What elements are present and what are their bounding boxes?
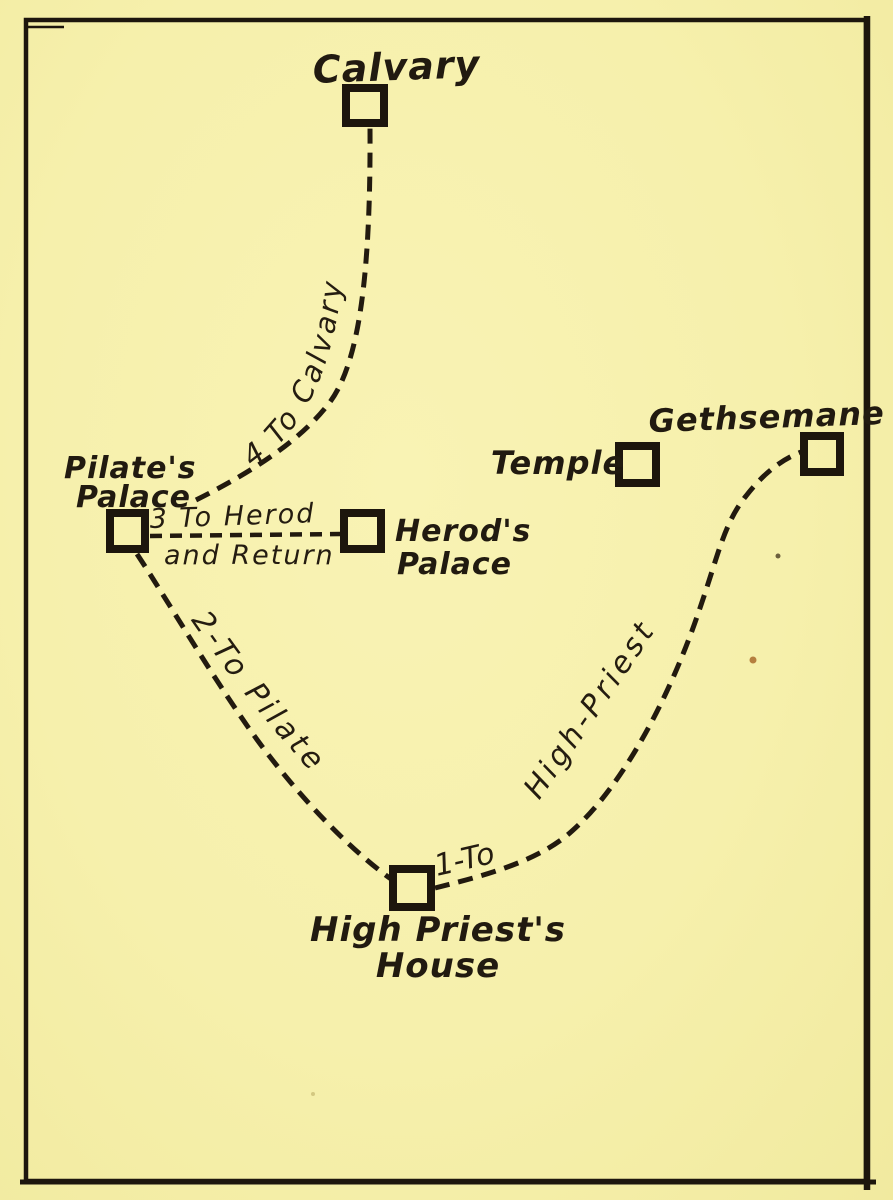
- paper-speck: [311, 1092, 315, 1096]
- route-4-label-text: 4 To Calvary: [236, 277, 350, 474]
- route-1-label-text: High-Priest: [517, 613, 663, 805]
- site-marker-pilates-palace: [110, 513, 145, 549]
- map-page: Calvary Gethsemane Temple Pilate's Palac…: [0, 0, 893, 1200]
- route-2-label-text: 2-To Pilate: [184, 605, 333, 780]
- paper-speck: [750, 657, 757, 664]
- route-3-label-line2: and Return: [164, 540, 335, 571]
- calvary-label: Calvary: [312, 42, 482, 92]
- site-marker-calvary: [346, 88, 384, 123]
- map-border: [20, 16, 876, 1190]
- route-3-path: [150, 534, 341, 536]
- temple-label: Temple: [491, 444, 625, 482]
- site-marker-gethsemane: [804, 436, 840, 472]
- gethsemane-label: Gethsemane: [648, 394, 885, 440]
- route-3-label-line1: 3 To Herod: [149, 498, 316, 535]
- paper-speck: [776, 554, 781, 559]
- herods-palace-label-line2: Palace: [397, 547, 512, 582]
- site-marker-herods-palace: [344, 513, 381, 549]
- herods-palace-label-line1: Herod's: [395, 514, 531, 549]
- jerusalem-route-map: Calvary Gethsemane Temple Pilate's Palac…: [0, 0, 893, 1200]
- route-4-label: 4 To Calvary: [236, 277, 350, 474]
- high-priests-house-label-line2: House: [376, 946, 500, 986]
- route-1-label-prefix: 1-To: [431, 836, 498, 884]
- site-marker-high-priests-house: [393, 869, 431, 907]
- route-1-label: High-Priest: [517, 613, 663, 805]
- border-rectangle: [26, 20, 866, 1181]
- high-priests-house-label-line1: High Priest's: [310, 910, 566, 950]
- route-2-label: 2-To Pilate: [184, 605, 333, 780]
